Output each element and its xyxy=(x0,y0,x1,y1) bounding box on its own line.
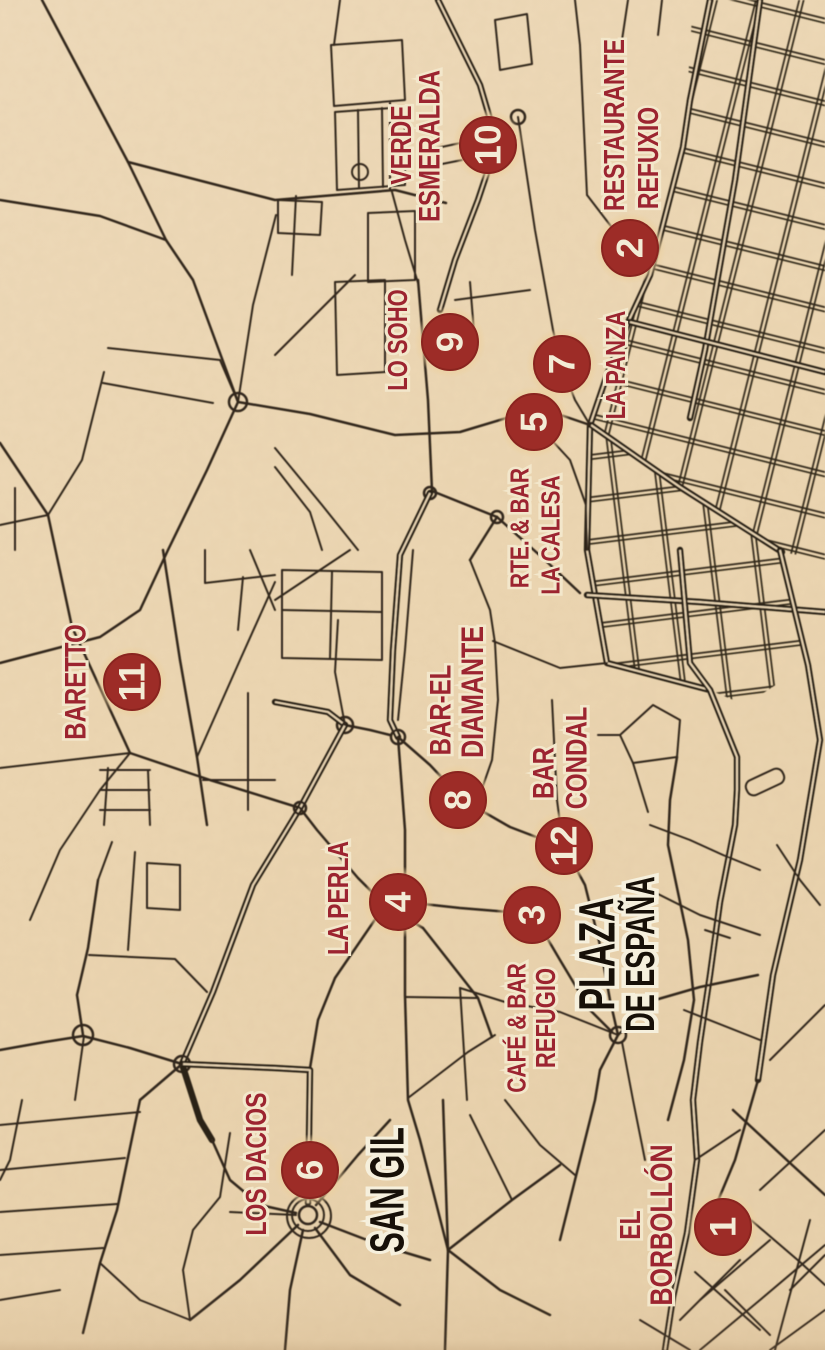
svg-text:5: 5 xyxy=(514,412,555,433)
svg-text:SAN GIL: SAN GIL xyxy=(360,1127,415,1253)
svg-text:LA CALESA: LA CALESA xyxy=(536,475,566,594)
svg-text:REFUXIO: REFUXIO xyxy=(631,107,664,209)
svg-text:ESMERALDA: ESMERALDA xyxy=(412,70,446,222)
svg-text:BARETTO: BARETTO xyxy=(58,624,92,740)
svg-text:BAR-EL: BAR-EL xyxy=(423,665,457,756)
svg-text:8: 8 xyxy=(438,790,479,811)
svg-text:EL: EL xyxy=(613,1210,646,1239)
svg-text:LA PERLA: LA PERLA xyxy=(321,841,354,955)
svg-text:LOS DACIOS: LOS DACIOS xyxy=(239,1092,272,1235)
svg-text:CONDAL: CONDAL xyxy=(559,707,593,810)
svg-text:RESTAURANTE: RESTAURANTE xyxy=(597,39,630,211)
svg-text:LO SOHO: LO SOHO xyxy=(383,289,414,390)
svg-text:DE ESPAÑA: DE ESPAÑA xyxy=(617,876,663,1031)
svg-text:9: 9 xyxy=(430,332,471,353)
svg-text:CAFÉ & BAR: CAFÉ & BAR xyxy=(501,963,532,1092)
svg-text:6: 6 xyxy=(290,1160,331,1181)
svg-text:11: 11 xyxy=(112,662,153,701)
svg-text:1: 1 xyxy=(703,1217,744,1238)
svg-text:7: 7 xyxy=(542,354,583,375)
svg-text:12: 12 xyxy=(544,825,585,866)
svg-text:BAR: BAR xyxy=(526,747,560,799)
svg-text:2: 2 xyxy=(610,238,651,259)
svg-text:REFUGIO: REFUGIO xyxy=(531,968,562,1068)
svg-text:DIAMANTE: DIAMANTE xyxy=(454,626,489,758)
svg-text:10: 10 xyxy=(468,124,509,165)
svg-text:4: 4 xyxy=(378,891,419,912)
svg-text:3: 3 xyxy=(512,905,553,926)
svg-text:BORBOLLÓN: BORBOLLÓN xyxy=(643,1144,678,1305)
svg-text:RTE. & BAR: RTE. & BAR xyxy=(505,468,535,588)
svg-text:LA PANZA: LA PANZA xyxy=(601,311,632,420)
